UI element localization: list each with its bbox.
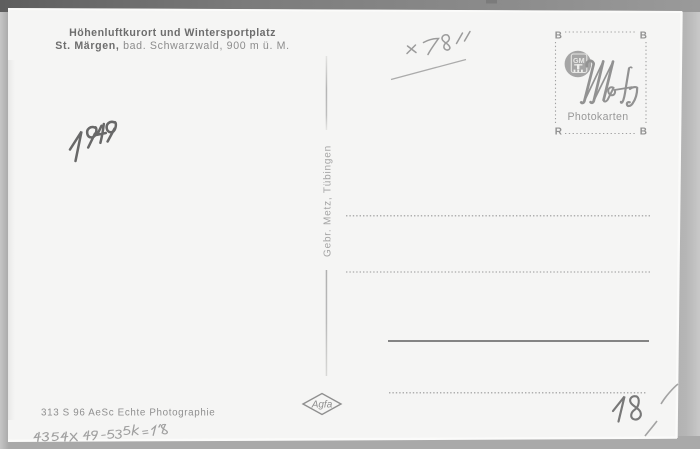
svg-text:Höhenluftkurort und Winterspor: Höhenluftkurort und Wintersportplatz	[69, 27, 276, 39]
svg-text:GM: GM	[573, 56, 585, 65]
svg-text:Photokarten: Photokarten	[568, 111, 629, 123]
svg-text:R: R	[555, 126, 563, 137]
svg-text:St. Märgen, bad. Schwarzwald,: St. Märgen, bad. Schwarzwald, 900 m ü. M…	[55, 40, 289, 52]
svg-text:B: B	[640, 30, 647, 41]
svg-text:313 S 96 AeSc Echte Photograph: 313 S 96 AeSc Echte Photographie	[41, 408, 215, 419]
svg-text:B: B	[555, 30, 562, 41]
svg-text:Agfa: Agfa	[311, 400, 333, 411]
svg-text:B: B	[640, 126, 647, 137]
svg-text:Gebr. Metz, Tübingen: Gebr. Metz, Tübingen	[323, 145, 334, 257]
